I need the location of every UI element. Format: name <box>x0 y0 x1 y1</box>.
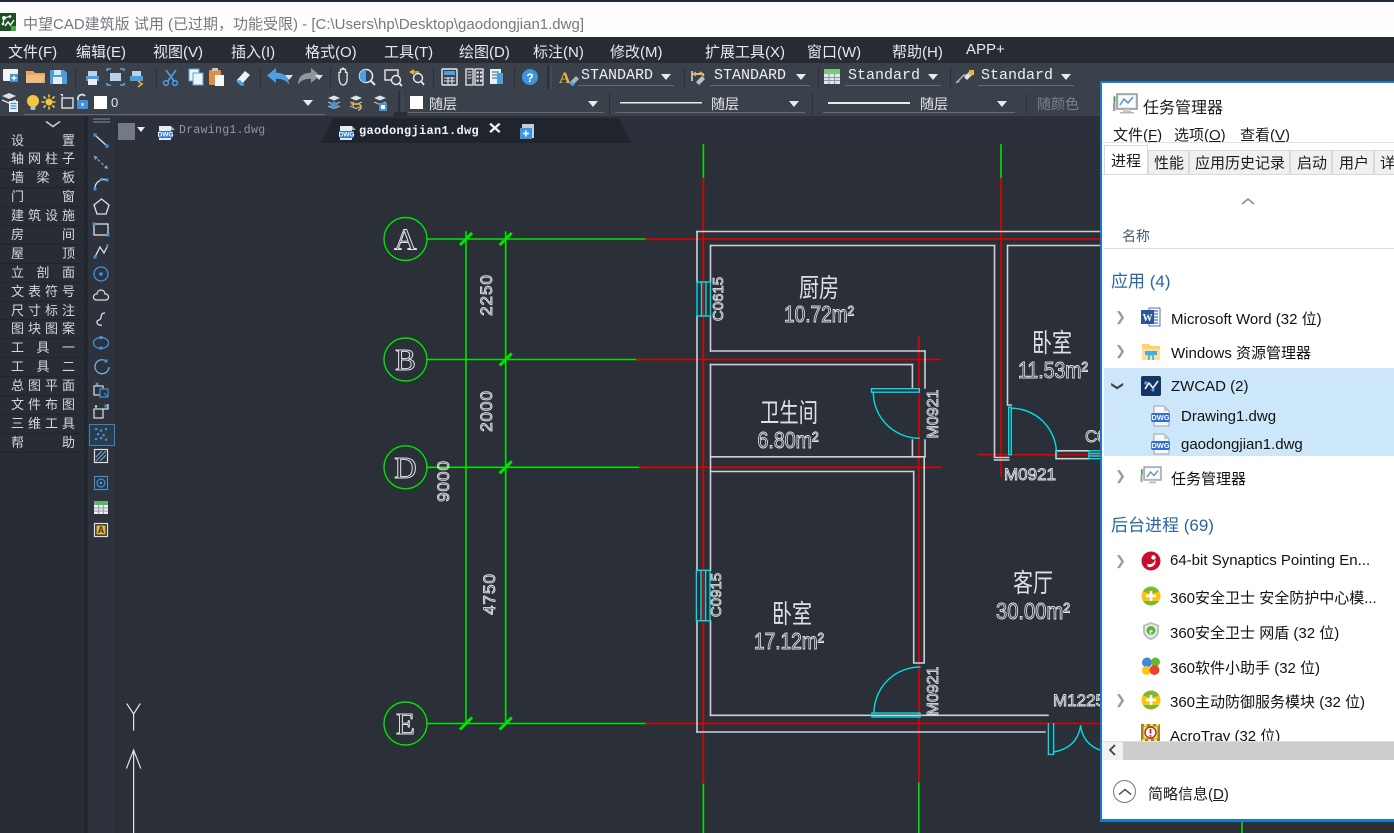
svg-text:DWG: DWG <box>158 132 173 139</box>
svg-text:?: ? <box>526 71 533 85</box>
svg-text:e: e <box>1149 627 1153 636</box>
svg-text:A: A <box>559 70 571 87</box>
svg-text:W: W <box>1143 313 1153 324</box>
svg-text:0: 0 <box>111 95 118 110</box>
svg-text:A: A <box>98 525 105 535</box>
